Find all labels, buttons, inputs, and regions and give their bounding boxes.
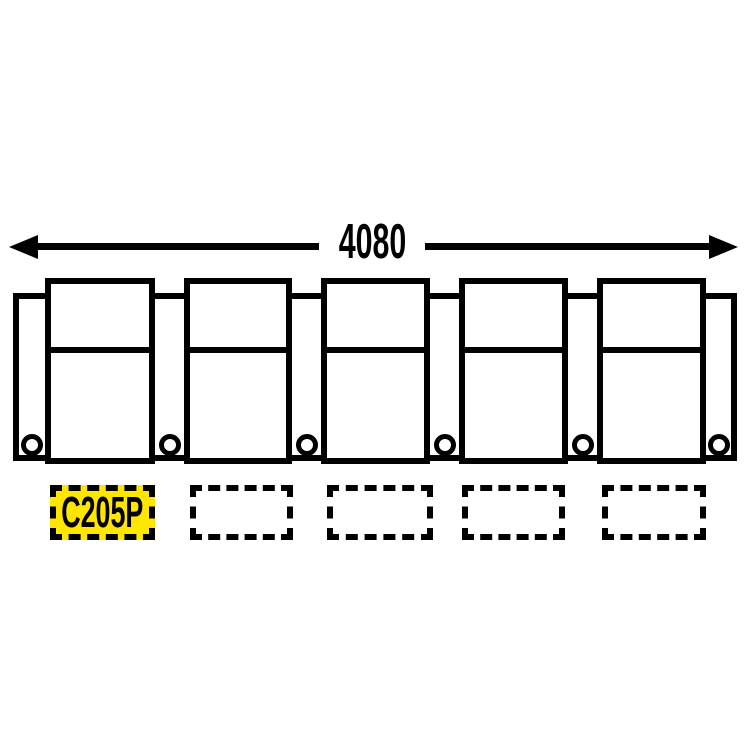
seat-backrest xyxy=(327,284,424,353)
dimension-line-left xyxy=(30,243,319,250)
seat-model-slot-selected[interactable]: C205P xyxy=(50,485,155,540)
seat-backrest xyxy=(603,284,700,353)
seat-backrest xyxy=(190,284,286,353)
cupholder-icon xyxy=(159,434,181,456)
cupholder-icon xyxy=(296,434,318,456)
seat xyxy=(45,278,155,464)
cupholder-icon xyxy=(21,434,43,456)
dimension-arrow-right-head xyxy=(709,235,738,259)
seat-model-slot[interactable] xyxy=(462,485,565,540)
seat xyxy=(321,278,430,464)
seat-backrest xyxy=(51,284,149,353)
seating-row-diagram: 4080 C205P xyxy=(0,0,750,750)
seat-model-slot[interactable] xyxy=(190,485,293,540)
cupholder-icon xyxy=(572,434,594,456)
seat-model-slot[interactable] xyxy=(602,485,706,540)
cupholder-icon xyxy=(434,434,456,456)
dimension-value: 4080 xyxy=(338,214,406,270)
seat-model-slot[interactable] xyxy=(327,485,433,540)
seat xyxy=(459,278,568,464)
dimension-label: 4080 xyxy=(319,216,425,268)
seat xyxy=(597,278,706,464)
seat-backrest xyxy=(465,284,562,353)
seat xyxy=(184,278,292,464)
seat-model-code: C205P xyxy=(61,488,143,538)
dimension-line-right xyxy=(425,243,712,250)
cupholder-icon xyxy=(708,434,730,456)
